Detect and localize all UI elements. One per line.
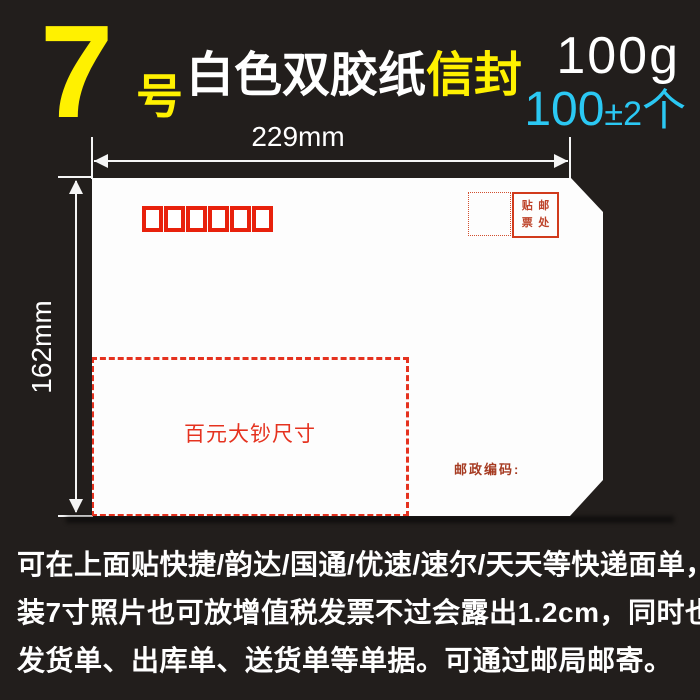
banknote-size-box: 百元大钞尺寸 <box>91 357 409 517</box>
postal-code-box <box>164 206 185 232</box>
postal-code-boxes <box>142 206 273 232</box>
description-line: 装7寸照片也可放增值税发票不过会露出1.2cm，同时也可装 <box>17 589 689 637</box>
description-text: 可在上面贴快捷/韵达/国通/优速/速尔/天天等快递面单，可 装7寸照片也可放增值… <box>17 541 689 685</box>
size-number: 7 <box>40 6 109 138</box>
dimension-tick <box>569 137 571 179</box>
height-dimension-arrow <box>58 176 93 517</box>
stamp-char: 处 <box>538 218 549 229</box>
stamp-dotted-box <box>468 192 511 236</box>
stamp-char: 邮 <box>538 201 549 212</box>
paper-weight: 100g <box>556 30 680 82</box>
postal-code-box <box>142 206 163 232</box>
banknote-size-label: 百元大钞尺寸 <box>94 418 406 448</box>
width-dimension-arrow <box>91 137 571 179</box>
arrowhead-right-icon <box>554 154 568 168</box>
dimension-tick <box>91 137 93 179</box>
height-dimension-label: 162mm <box>26 300 58 393</box>
dimension-line <box>75 181 77 512</box>
stamp-char: 票 <box>522 218 533 229</box>
envelope-shadow <box>66 516 674 523</box>
material-text: 白色双胶纸 <box>186 49 426 102</box>
stamp-area: 贴 邮 票 处 <box>468 192 559 238</box>
size-unit: 号 <box>136 73 183 120</box>
dimension-tick <box>58 176 93 178</box>
postal-code-box <box>208 206 229 232</box>
arrowhead-up-icon <box>69 180 83 194</box>
quantity-unit: 个 <box>642 86 686 135</box>
envelope-illustration: 贴 邮 票 处 百元大钞尺寸 邮政编码: <box>92 178 603 516</box>
description-line: 可在上面贴快捷/韵达/国通/优速/速尔/天天等快递面单，可 <box>17 541 689 589</box>
plus-minus-sign: ± <box>604 95 623 133</box>
product-text: 信封 <box>426 49 522 102</box>
stamp-char: 贴 <box>522 201 533 212</box>
postal-code-box <box>252 206 273 232</box>
dimension-line <box>94 160 568 162</box>
postcode-label: 邮政编码: <box>454 459 520 478</box>
arrowhead-left-icon <box>94 154 108 168</box>
quantity-info: 100±2个 <box>524 86 686 134</box>
product-title: 白色双胶纸信封 <box>186 52 522 100</box>
quantity-count: 100 <box>524 83 604 136</box>
postal-code-box <box>230 206 251 232</box>
postal-code-box <box>186 206 207 232</box>
stamp-label-box: 贴 邮 票 处 <box>512 192 559 238</box>
arrowhead-down-icon <box>69 499 83 513</box>
quantity-tolerance: 2 <box>623 95 642 133</box>
description-line: 发货单、出库单、送货单等单据。可通过邮局邮寄。 <box>17 637 689 685</box>
